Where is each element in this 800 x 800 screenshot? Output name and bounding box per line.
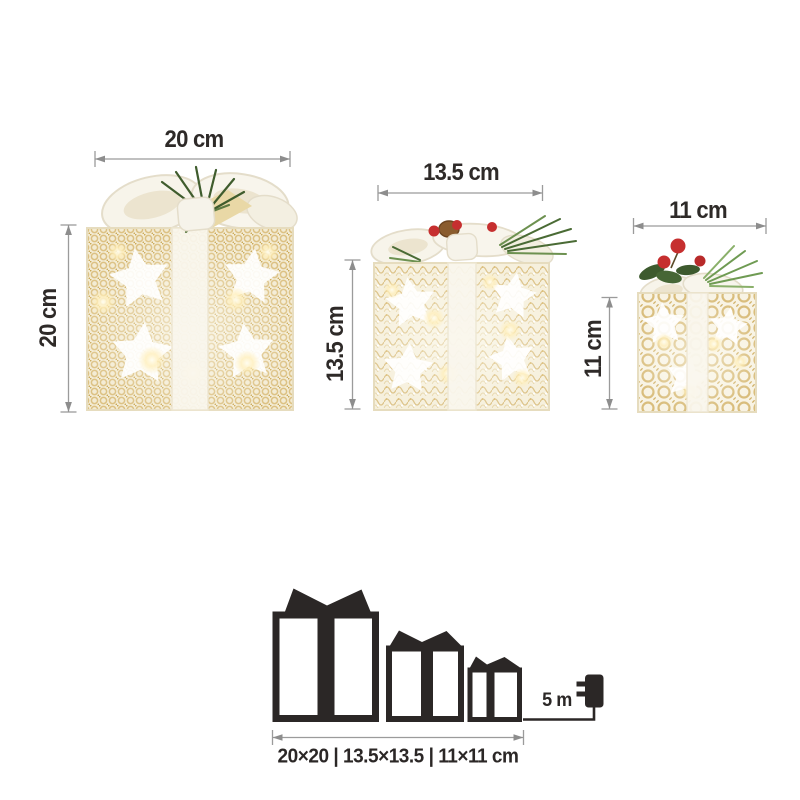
- bow-knot-large: [177, 196, 216, 231]
- dim-label-small-height: 11 cm: [580, 320, 608, 378]
- dimension-arrow-medium-width: [378, 185, 543, 201]
- scene-graphics: [0, 0, 800, 800]
- dim-label-large-height: 20 cm: [35, 289, 63, 348]
- berry-icon: [452, 220, 462, 230]
- gift-box-large-icon: [273, 589, 380, 723]
- product-dimension-sheet: 20 cm 20 cm 13.5 cm 13.5 cm 11 cm 11 cm …: [0, 0, 800, 800]
- berry-icon: [429, 226, 440, 237]
- dimension-arrow-size-summary: [273, 730, 524, 745]
- gift-box-large-photo: [70, 165, 310, 425]
- ribbon-large: [172, 228, 208, 410]
- dim-label-medium-width: 13.5 cm: [423, 159, 499, 187]
- gift-box-small-icon: [468, 657, 523, 723]
- dim-label-small-width: 11 cm: [669, 197, 727, 225]
- ribbon-small: [687, 293, 708, 412]
- berry-icon: [487, 222, 497, 232]
- bow-knot-medium: [446, 233, 478, 261]
- dim-label-medium-height: 13.5 cm: [322, 306, 350, 382]
- ribbon-medium: [448, 263, 476, 410]
- power-adapter-icon: [577, 675, 604, 708]
- gift-box-small-photo: [629, 239, 765, 416]
- dim-label-large-width: 20 cm: [165, 126, 224, 154]
- cable-length-label: 5 m: [542, 690, 572, 712]
- size-summary-label: 20×20 | 13.5×13.5 | 11×11 cm: [278, 746, 519, 769]
- gift-box-medium-icon: [386, 631, 464, 723]
- gift-box-medium-photo: [361, 216, 576, 413]
